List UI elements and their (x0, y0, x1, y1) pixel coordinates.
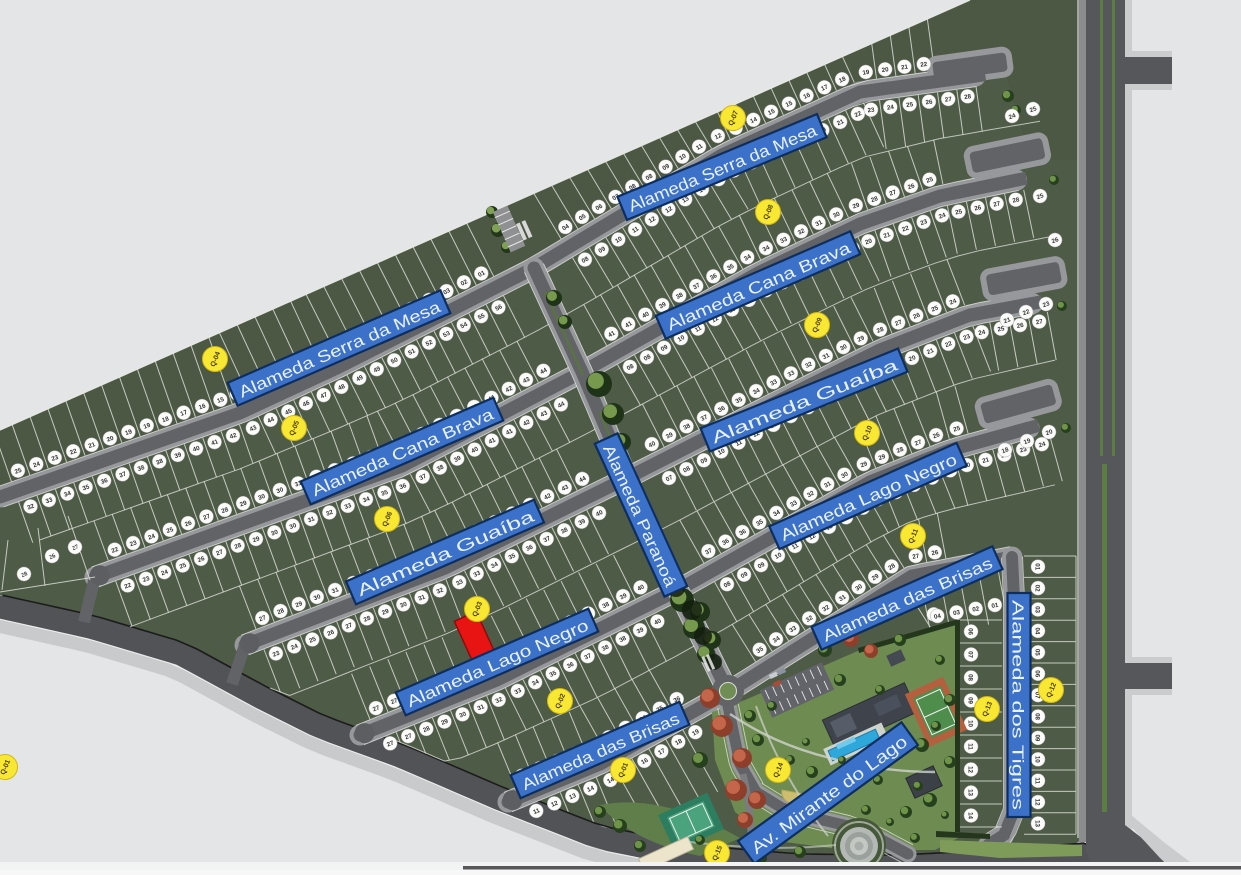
svg-text:09: 09 (967, 697, 974, 704)
svg-text:03: 03 (1034, 606, 1041, 613)
svg-text:06: 06 (967, 628, 974, 635)
svg-text:11: 11 (967, 743, 974, 750)
svg-text:10: 10 (967, 720, 974, 727)
svg-text:13: 13 (1034, 820, 1041, 827)
svg-text:08: 08 (1034, 713, 1041, 720)
svg-text:01: 01 (1034, 563, 1041, 570)
svg-text:07: 07 (967, 651, 974, 658)
svg-text:14: 14 (967, 812, 974, 819)
svg-text:05: 05 (1034, 649, 1041, 656)
svg-text:06: 06 (1034, 670, 1041, 677)
svg-text:04: 04 (1034, 627, 1041, 634)
svg-text:10: 10 (1034, 756, 1041, 763)
svg-text:02: 02 (1034, 585, 1041, 592)
svg-text:08: 08 (967, 674, 974, 681)
svg-text:12: 12 (967, 766, 974, 773)
svg-text:11: 11 (1034, 777, 1041, 784)
svg-text:09: 09 (1034, 734, 1041, 741)
svg-text:Alameda dos Tigres: Alameda dos Tigres (1009, 600, 1026, 810)
svg-text:13: 13 (967, 789, 974, 796)
svg-text:12: 12 (1034, 799, 1041, 806)
